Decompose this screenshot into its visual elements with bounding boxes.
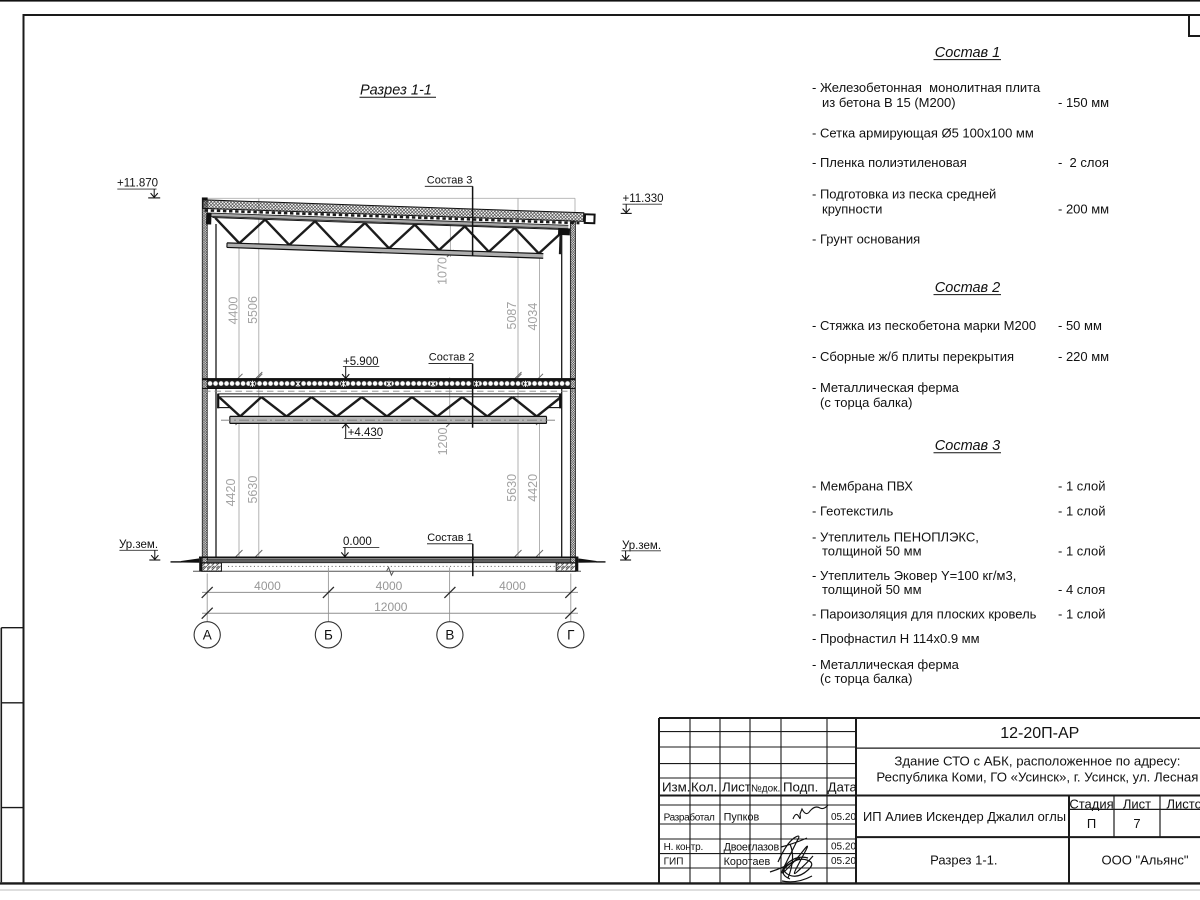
svg-text:Дата: Дата bbox=[828, 780, 858, 795]
svg-text:Ур.зем.: Ур.зем. bbox=[119, 539, 158, 551]
svg-text:4400: 4400 bbox=[226, 297, 240, 325]
svg-text:0.000: 0.000 bbox=[343, 536, 372, 548]
svg-text:толщиной 50 мм: толщиной 50 мм bbox=[822, 544, 922, 559]
svg-text:Состав 2: Состав 2 bbox=[935, 280, 1000, 296]
svg-text:- 200 мм: - 200 мм bbox=[1058, 201, 1109, 216]
svg-text:(с торца балка): (с торца балка) bbox=[820, 395, 913, 410]
svg-text:Г: Г bbox=[567, 628, 575, 643]
svg-text:4420: 4420 bbox=[224, 479, 238, 507]
svg-text:Б: Б bbox=[324, 628, 333, 643]
svg-text:Коротаев: Коротаев bbox=[724, 856, 771, 868]
svg-text:- 50 мм: - 50 мм bbox=[1058, 318, 1102, 333]
svg-text:Н. контр.: Н. контр. bbox=[664, 842, 703, 853]
svg-text:05.20: 05.20 bbox=[831, 812, 856, 823]
svg-text:- Стяжка из пескобетона марки: - Стяжка из пескобетона марки М200 bbox=[812, 318, 1036, 333]
svg-text:Здание СТО с АБК, расположенно: Здание СТО с АБК, расположенное по адрес… bbox=[894, 753, 1180, 768]
svg-text:12-20П-АР: 12-20П-АР bbox=[1000, 725, 1079, 742]
svg-text:- 150 мм: - 150 мм bbox=[1058, 95, 1109, 110]
svg-text:Республика Коми, ГО «Усинск»,: Республика Коми, ГО «Усинск», г. Усинск,… bbox=[876, 769, 1198, 784]
svg-text:- Сетка армирующая Ø5 100х100: - Сетка армирующая Ø5 100х100 мм bbox=[812, 125, 1034, 140]
svg-text:4000: 4000 bbox=[499, 579, 526, 593]
svg-text:5630: 5630 bbox=[246, 476, 260, 504]
svg-text:толщиной 50 мм: толщиной 50 мм bbox=[822, 582, 922, 597]
svg-text:12000: 12000 bbox=[374, 600, 408, 614]
svg-text:4000: 4000 bbox=[376, 579, 403, 593]
svg-text:ИП Алиев Искендер Джалил оглы: ИП Алиев Искендер Джалил оглы bbox=[863, 809, 1066, 824]
svg-text:Состав 1: Состав 1 bbox=[935, 45, 1000, 61]
svg-text:Разрез 1-1: Разрез 1-1 bbox=[360, 82, 432, 98]
svg-text:- 1 слой: - 1 слой bbox=[1058, 479, 1106, 494]
svg-text:Подп.: Подп. bbox=[783, 780, 818, 795]
svg-text:А: А bbox=[203, 628, 212, 643]
svg-text:- 220 мм: - 220 мм bbox=[1058, 349, 1109, 364]
svg-text:(с торца балка): (с торца балка) bbox=[820, 671, 913, 686]
svg-text:+11.870: +11.870 bbox=[117, 178, 158, 190]
svg-text:- 1 слой: - 1 слой bbox=[1058, 606, 1106, 621]
svg-text:- 2 слоя: - 2 слоя bbox=[1058, 155, 1109, 170]
svg-text:№док.: №док. bbox=[751, 783, 780, 794]
svg-text:- 4 слоя: - 4 слоя bbox=[1058, 582, 1105, 597]
svg-text:- Утеплитель ПЕНОПЛЭКС,: - Утеплитель ПЕНОПЛЭКС, bbox=[812, 529, 979, 544]
svg-text:из бетона В 15 (М200): из бетона В 15 (М200) bbox=[822, 95, 956, 110]
svg-text:- Металлическая ферма: - Металлическая ферма bbox=[812, 657, 960, 672]
svg-text:Стадия: Стадия bbox=[1069, 797, 1113, 812]
svg-text:Состав 3: Состав 3 bbox=[935, 438, 1000, 454]
svg-text:05.20: 05.20 bbox=[831, 842, 856, 853]
svg-text:- Грунт основания: - Грунт основания bbox=[812, 231, 920, 246]
svg-text:Двоеглазов: Двоеглазов bbox=[724, 841, 780, 853]
svg-text:Разрез 1-1.: Разрез 1-1. bbox=[930, 853, 997, 868]
svg-text:П: П bbox=[1087, 816, 1096, 831]
svg-text:1200: 1200 bbox=[436, 428, 450, 456]
svg-text:- Профнастил Н 114х0.9 мм: - Профнастил Н 114х0.9 мм bbox=[812, 631, 980, 646]
svg-text:5087: 5087 bbox=[505, 302, 519, 330]
svg-text:Лист: Лист bbox=[1123, 797, 1151, 812]
svg-text:Листов: Листов bbox=[1167, 797, 1200, 812]
svg-text:- Металлическая ферма: - Металлическая ферма bbox=[812, 380, 960, 395]
svg-text:ГИП: ГИП bbox=[664, 857, 684, 868]
svg-text:- Сборные ж/б плиты перекрытия: - Сборные ж/б плиты перекрытия bbox=[812, 349, 1014, 364]
svg-text:05.20: 05.20 bbox=[831, 856, 856, 867]
svg-text:- 1 слой: - 1 слой bbox=[1058, 503, 1106, 518]
svg-text:В: В bbox=[445, 628, 454, 643]
svg-text:5506: 5506 bbox=[246, 296, 260, 324]
svg-text:+11.330: +11.330 bbox=[623, 193, 664, 205]
svg-text:Состав 3: Состав 3 bbox=[427, 174, 473, 186]
svg-text:- 1 слой: - 1 слой bbox=[1058, 544, 1106, 559]
svg-text:- Пароизоляция для плоских кро: - Пароизоляция для плоских кровель bbox=[812, 606, 1037, 621]
svg-text:4420: 4420 bbox=[526, 474, 540, 502]
svg-text:- Железобетонная монолитная п: - Железобетонная монолитная плита bbox=[812, 80, 1041, 95]
svg-text:5630: 5630 bbox=[505, 474, 519, 502]
svg-text:1070: 1070 bbox=[435, 257, 449, 285]
svg-text:4034: 4034 bbox=[526, 303, 540, 331]
svg-text:+4.430: +4.430 bbox=[348, 427, 384, 439]
svg-text:Состав 2: Состав 2 bbox=[429, 352, 475, 364]
svg-text:ООО "Альянс": ООО "Альянс" bbox=[1102, 853, 1189, 868]
svg-text:- Мембрана ПВХ: - Мембрана ПВХ bbox=[812, 479, 913, 494]
svg-text:Разработал: Разработал bbox=[664, 811, 715, 823]
svg-text:Кол.: Кол. bbox=[691, 780, 717, 795]
svg-text:крупности: крупности bbox=[822, 201, 882, 216]
svg-text:7: 7 bbox=[1133, 816, 1140, 831]
svg-text:- Утеплитель Эковер Y=100 кг/м: - Утеплитель Эковер Y=100 кг/м3, bbox=[812, 568, 1016, 583]
svg-text:- Подготовка из песка средней: - Подготовка из песка средней bbox=[812, 186, 996, 201]
svg-text:- Пленка полиэтиленовая: - Пленка полиэтиленовая bbox=[812, 155, 967, 170]
svg-text:Состав 1: Состав 1 bbox=[427, 532, 473, 544]
svg-text:Изм.: Изм. bbox=[662, 780, 691, 795]
svg-text:- Геотекстиль: - Геотекстиль bbox=[812, 503, 893, 518]
svg-text:4000: 4000 bbox=[254, 579, 281, 593]
svg-text:Пупков: Пупков bbox=[724, 812, 760, 824]
svg-text:Лист: Лист bbox=[722, 780, 751, 795]
